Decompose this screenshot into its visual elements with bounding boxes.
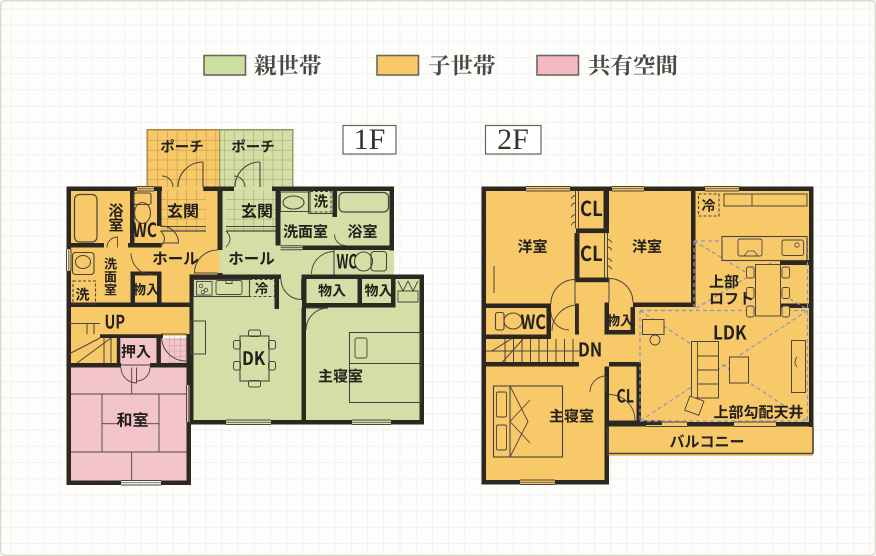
svg-text:1F: 1F (354, 123, 386, 156)
svg-text:2F: 2F (497, 123, 529, 156)
